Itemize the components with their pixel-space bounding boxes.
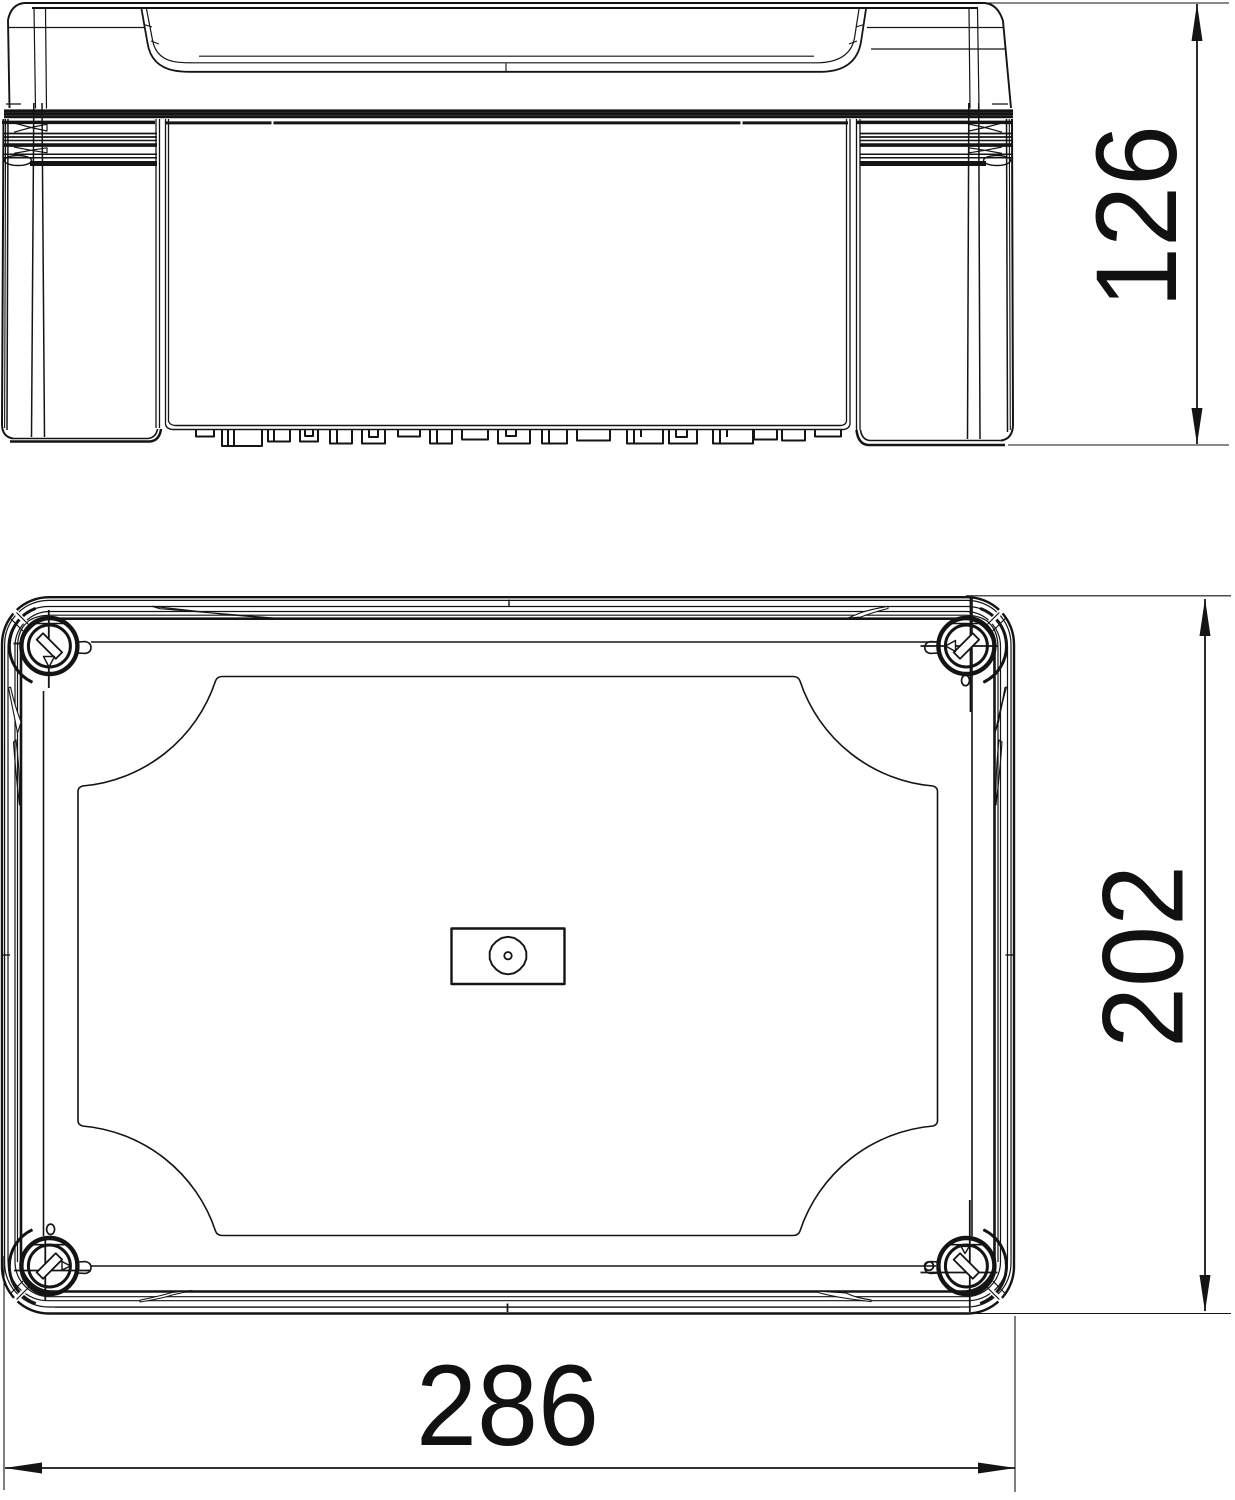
svg-text:202: 202 (1080, 865, 1208, 1048)
svg-text:126: 126 (1073, 125, 1201, 308)
svg-text:286: 286 (416, 1342, 599, 1470)
